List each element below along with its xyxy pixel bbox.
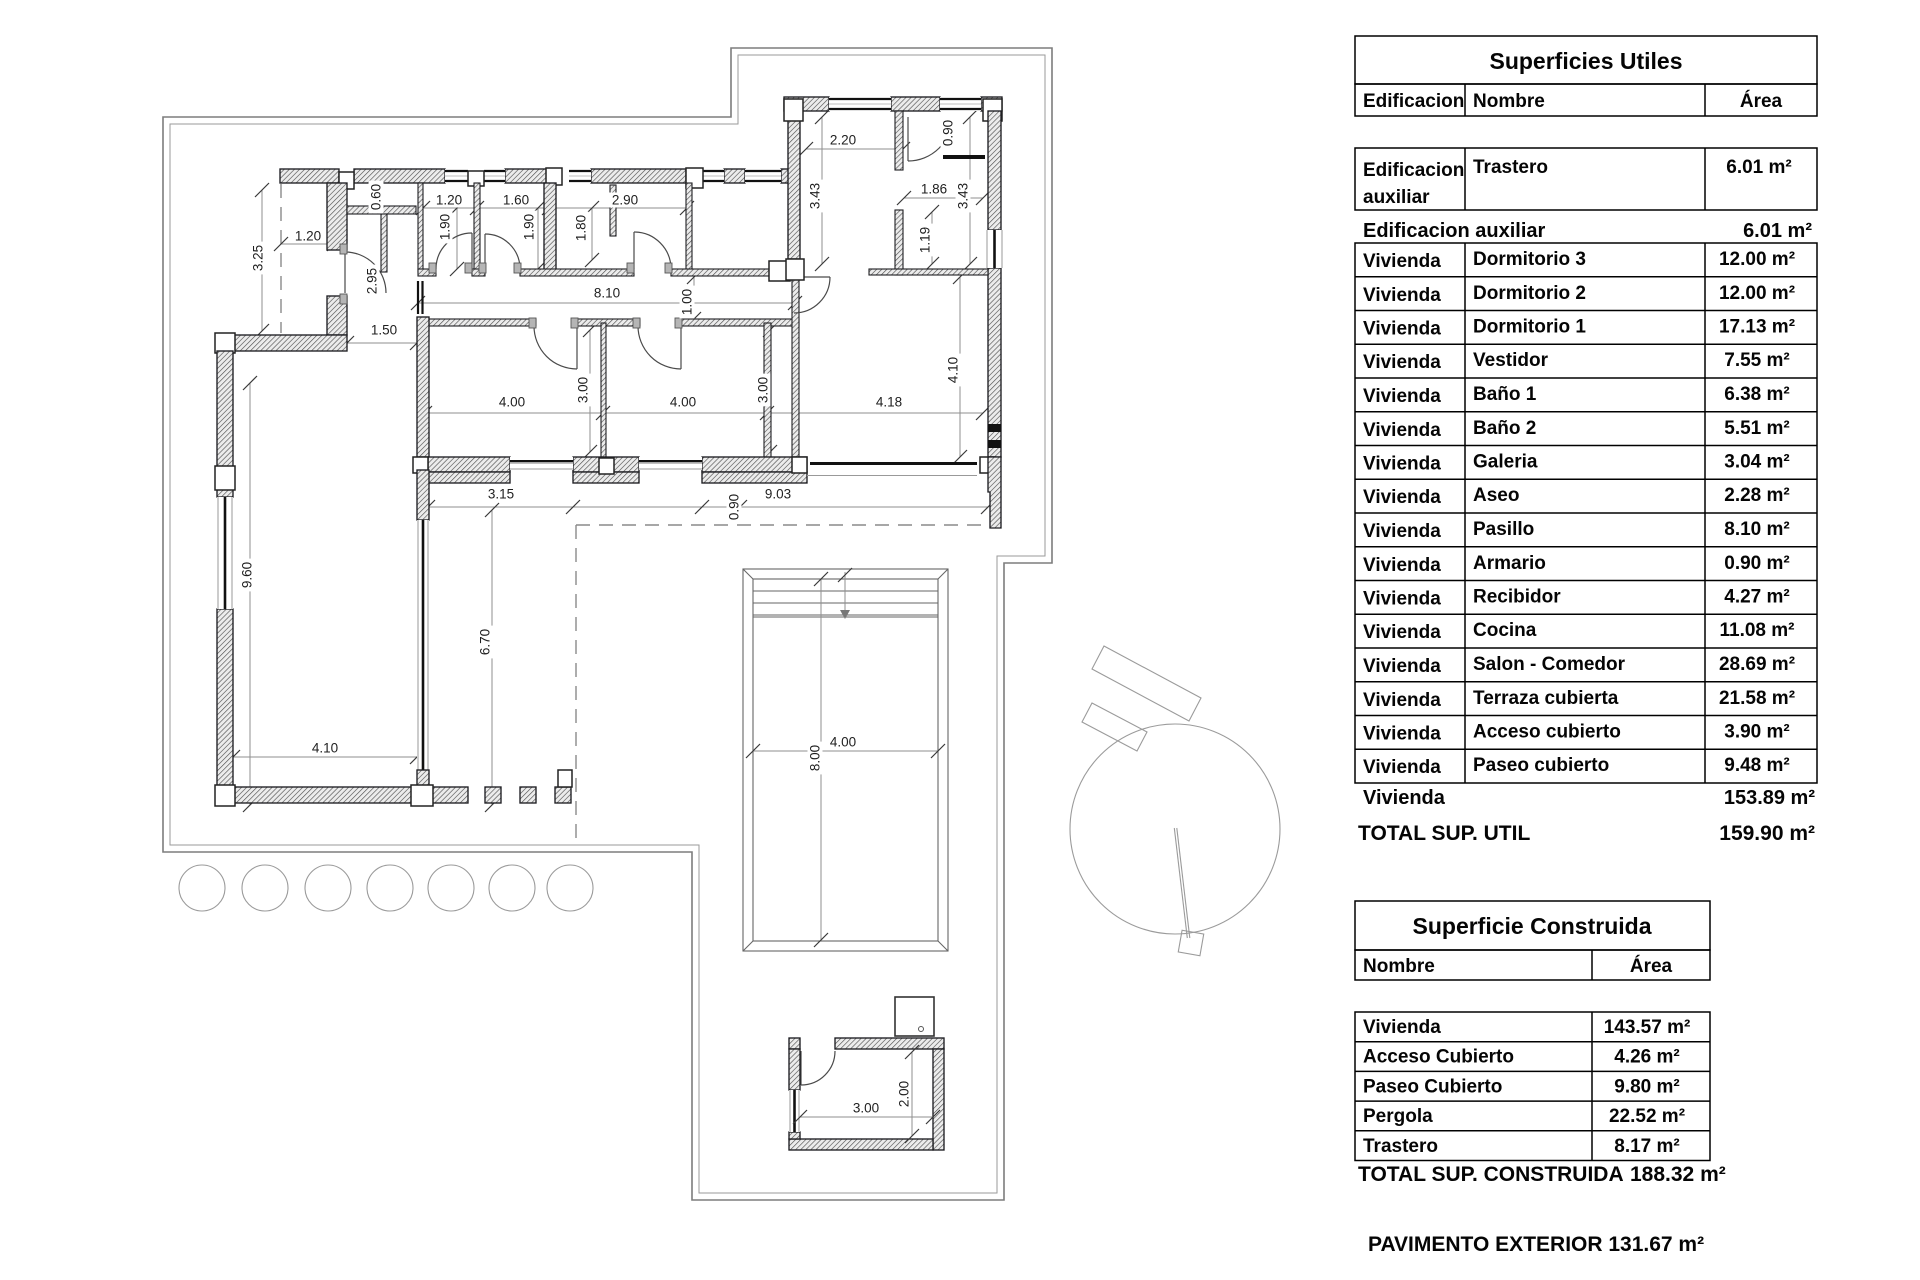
svg-text:Acceso cubierto: Acceso cubierto — [1473, 722, 1621, 743]
svg-text:Nombre: Nombre — [1473, 91, 1545, 112]
svg-text:Vivienda: Vivienda — [1363, 420, 1441, 441]
svg-text:Vivienda: Vivienda — [1363, 724, 1441, 745]
svg-text:Salon - Comedor: Salon - Comedor — [1473, 654, 1626, 675]
svg-text:Baño 1: Baño 1 — [1473, 384, 1537, 405]
svg-text:3.25: 3.25 — [251, 245, 266, 271]
svg-text:4.26 m²: 4.26 m² — [1614, 1047, 1679, 1068]
svg-text:1.60: 1.60 — [503, 193, 529, 208]
svg-text:4.00: 4.00 — [670, 395, 696, 410]
svg-text:9.48 m²: 9.48 m² — [1724, 755, 1789, 776]
svg-text:4.18: 4.18 — [876, 395, 902, 410]
svg-text:Vivienda: Vivienda — [1363, 251, 1441, 272]
svg-text:Edificacion: Edificacion — [1363, 91, 1464, 112]
svg-text:7.55 m²: 7.55 m² — [1724, 350, 1789, 371]
svg-text:Vivienda: Vivienda — [1363, 454, 1441, 475]
svg-text:Vivienda: Vivienda — [1363, 757, 1441, 778]
svg-text:1.90: 1.90 — [438, 214, 453, 240]
svg-text:Vivienda: Vivienda — [1363, 487, 1441, 508]
svg-text:3.00: 3.00 — [576, 377, 591, 403]
svg-text:2.95: 2.95 — [365, 268, 380, 294]
svg-text:Edificacion auxiliar: Edificacion auxiliar — [1363, 220, 1546, 242]
svg-text:Baño 2: Baño 2 — [1473, 418, 1536, 439]
svg-text:1.90: 1.90 — [522, 214, 537, 240]
svg-text:PAVIMENTO EXTERIOR 131.67 m²: PAVIMENTO EXTERIOR 131.67 m² — [1368, 1233, 1704, 1256]
svg-text:21.58 m²: 21.58 m² — [1719, 688, 1795, 709]
svg-text:1.20: 1.20 — [436, 193, 462, 208]
svg-text:6.38 m²: 6.38 m² — [1724, 384, 1789, 405]
svg-text:1.00: 1.00 — [680, 289, 695, 315]
svg-text:8.17 m²: 8.17 m² — [1614, 1136, 1679, 1157]
svg-text:Dormitorio 2: Dormitorio 2 — [1473, 283, 1586, 304]
svg-text:8.10: 8.10 — [594, 286, 620, 301]
svg-text:0.90 m²: 0.90 m² — [1724, 553, 1789, 574]
svg-text:Vivienda: Vivienda — [1363, 521, 1441, 542]
svg-text:4.10: 4.10 — [946, 357, 961, 383]
svg-text:Dormitorio 3: Dormitorio 3 — [1473, 249, 1586, 270]
svg-text:Vivienda: Vivienda — [1363, 690, 1441, 711]
svg-text:Vivienda: Vivienda — [1363, 285, 1441, 306]
svg-text:3.43: 3.43 — [808, 183, 823, 209]
svg-text:3.90 m²: 3.90 m² — [1724, 722, 1789, 743]
svg-text:17.13 m²: 17.13 m² — [1719, 317, 1795, 338]
svg-text:12.00 m²: 12.00 m² — [1719, 283, 1795, 304]
svg-text:Trastero: Trastero — [1363, 1136, 1438, 1157]
svg-text:1.20: 1.20 — [295, 229, 321, 244]
svg-text:3.15: 3.15 — [488, 487, 514, 502]
svg-text:2.28 m²: 2.28 m² — [1724, 485, 1789, 506]
svg-text:6.70: 6.70 — [478, 629, 493, 655]
svg-text:4.00: 4.00 — [830, 735, 856, 750]
svg-text:5.51 m²: 5.51 m² — [1724, 418, 1789, 439]
svg-text:TOTAL SUP. CONSTRUIDA: TOTAL SUP. CONSTRUIDA — [1358, 1163, 1624, 1186]
svg-text:4.10: 4.10 — [312, 741, 338, 756]
svg-text:4.00: 4.00 — [499, 395, 525, 410]
svg-text:9.80 m²: 9.80 m² — [1614, 1076, 1679, 1097]
svg-text:Pasillo: Pasillo — [1473, 519, 1534, 540]
svg-text:Vivienda: Vivienda — [1363, 622, 1441, 643]
svg-text:Edificacion: Edificacion — [1363, 160, 1464, 181]
svg-text:TOTAL SUP. UTIL: TOTAL SUP. UTIL — [1358, 822, 1530, 845]
svg-text:2.00: 2.00 — [897, 1081, 912, 1107]
svg-text:Paseo cubierto: Paseo cubierto — [1473, 755, 1609, 776]
svg-text:159.90 m²: 159.90 m² — [1719, 822, 1815, 845]
svg-text:11.08 m²: 11.08 m² — [1720, 620, 1795, 641]
svg-text:Vivienda: Vivienda — [1363, 589, 1441, 610]
svg-text:2.90: 2.90 — [612, 193, 638, 208]
svg-text:0.60: 0.60 — [369, 184, 384, 210]
svg-text:Trastero: Trastero — [1473, 157, 1548, 178]
svg-text:Recibidor: Recibidor — [1473, 587, 1561, 608]
svg-text:Superficies Utiles: Superficies Utiles — [1489, 48, 1682, 74]
svg-text:1.50: 1.50 — [371, 323, 397, 338]
svg-text:22.52 m²: 22.52 m² — [1609, 1106, 1685, 1127]
svg-text:2.20: 2.20 — [830, 133, 856, 148]
svg-text:3.00: 3.00 — [853, 1101, 879, 1116]
svg-text:auxiliar: auxiliar — [1363, 187, 1430, 208]
svg-text:Cocina: Cocina — [1473, 620, 1537, 641]
svg-text:Pergola: Pergola — [1363, 1106, 1433, 1127]
svg-text:Aseo: Aseo — [1473, 485, 1519, 506]
svg-text:Acceso Cubierto: Acceso Cubierto — [1363, 1047, 1514, 1068]
svg-text:0.90: 0.90 — [941, 120, 956, 146]
svg-text:Armario: Armario — [1473, 553, 1546, 574]
svg-text:Superficie Construida: Superficie Construida — [1413, 913, 1652, 939]
svg-text:Vivienda: Vivienda — [1363, 656, 1441, 677]
svg-text:28.69 m²: 28.69 m² — [1719, 654, 1795, 675]
svg-text:8.00: 8.00 — [808, 745, 823, 771]
svg-text:1.19: 1.19 — [918, 227, 933, 253]
svg-text:Vivienda: Vivienda — [1363, 555, 1441, 576]
svg-text:4.27 m²: 4.27 m² — [1724, 587, 1789, 608]
svg-text:Terraza cubierta: Terraza cubierta — [1473, 688, 1619, 709]
svg-text:1.86: 1.86 — [921, 182, 947, 197]
svg-text:Galeria: Galeria — [1473, 452, 1538, 473]
svg-text:Área: Área — [1630, 955, 1673, 977]
svg-text:9.60: 9.60 — [240, 562, 255, 588]
svg-text:Vivienda: Vivienda — [1363, 352, 1441, 373]
svg-text:143.57 m²: 143.57 m² — [1604, 1017, 1691, 1038]
svg-text:Vivienda: Vivienda — [1363, 787, 1446, 809]
svg-text:Paseo Cubierto: Paseo Cubierto — [1363, 1076, 1502, 1097]
svg-text:3.04 m²: 3.04 m² — [1724, 452, 1789, 473]
svg-text:8.10 m²: 8.10 m² — [1724, 519, 1789, 540]
svg-text:Dormitorio 1: Dormitorio 1 — [1473, 317, 1586, 338]
svg-text:1.80: 1.80 — [574, 215, 589, 241]
svg-text:Nombre: Nombre — [1363, 956, 1435, 977]
svg-text:Vivienda: Vivienda — [1363, 386, 1441, 407]
svg-text:6.01 m²: 6.01 m² — [1743, 220, 1812, 242]
svg-text:9.03: 9.03 — [765, 487, 791, 502]
svg-text:12.00 m²: 12.00 m² — [1719, 249, 1795, 270]
svg-text:3.00: 3.00 — [756, 377, 771, 403]
svg-text:Vivienda: Vivienda — [1363, 1017, 1441, 1038]
svg-text:Vivienda: Vivienda — [1363, 319, 1441, 340]
svg-text:3.43: 3.43 — [956, 183, 971, 209]
svg-text:0.90: 0.90 — [727, 494, 742, 520]
svg-text:Vestidor: Vestidor — [1473, 350, 1549, 371]
svg-text:153.89 m²: 153.89 m² — [1724, 787, 1816, 809]
svg-text:6.01 m²: 6.01 m² — [1726, 157, 1791, 178]
svg-text:188.32 m²: 188.32 m² — [1630, 1163, 1726, 1186]
svg-text:Área: Área — [1740, 90, 1783, 112]
